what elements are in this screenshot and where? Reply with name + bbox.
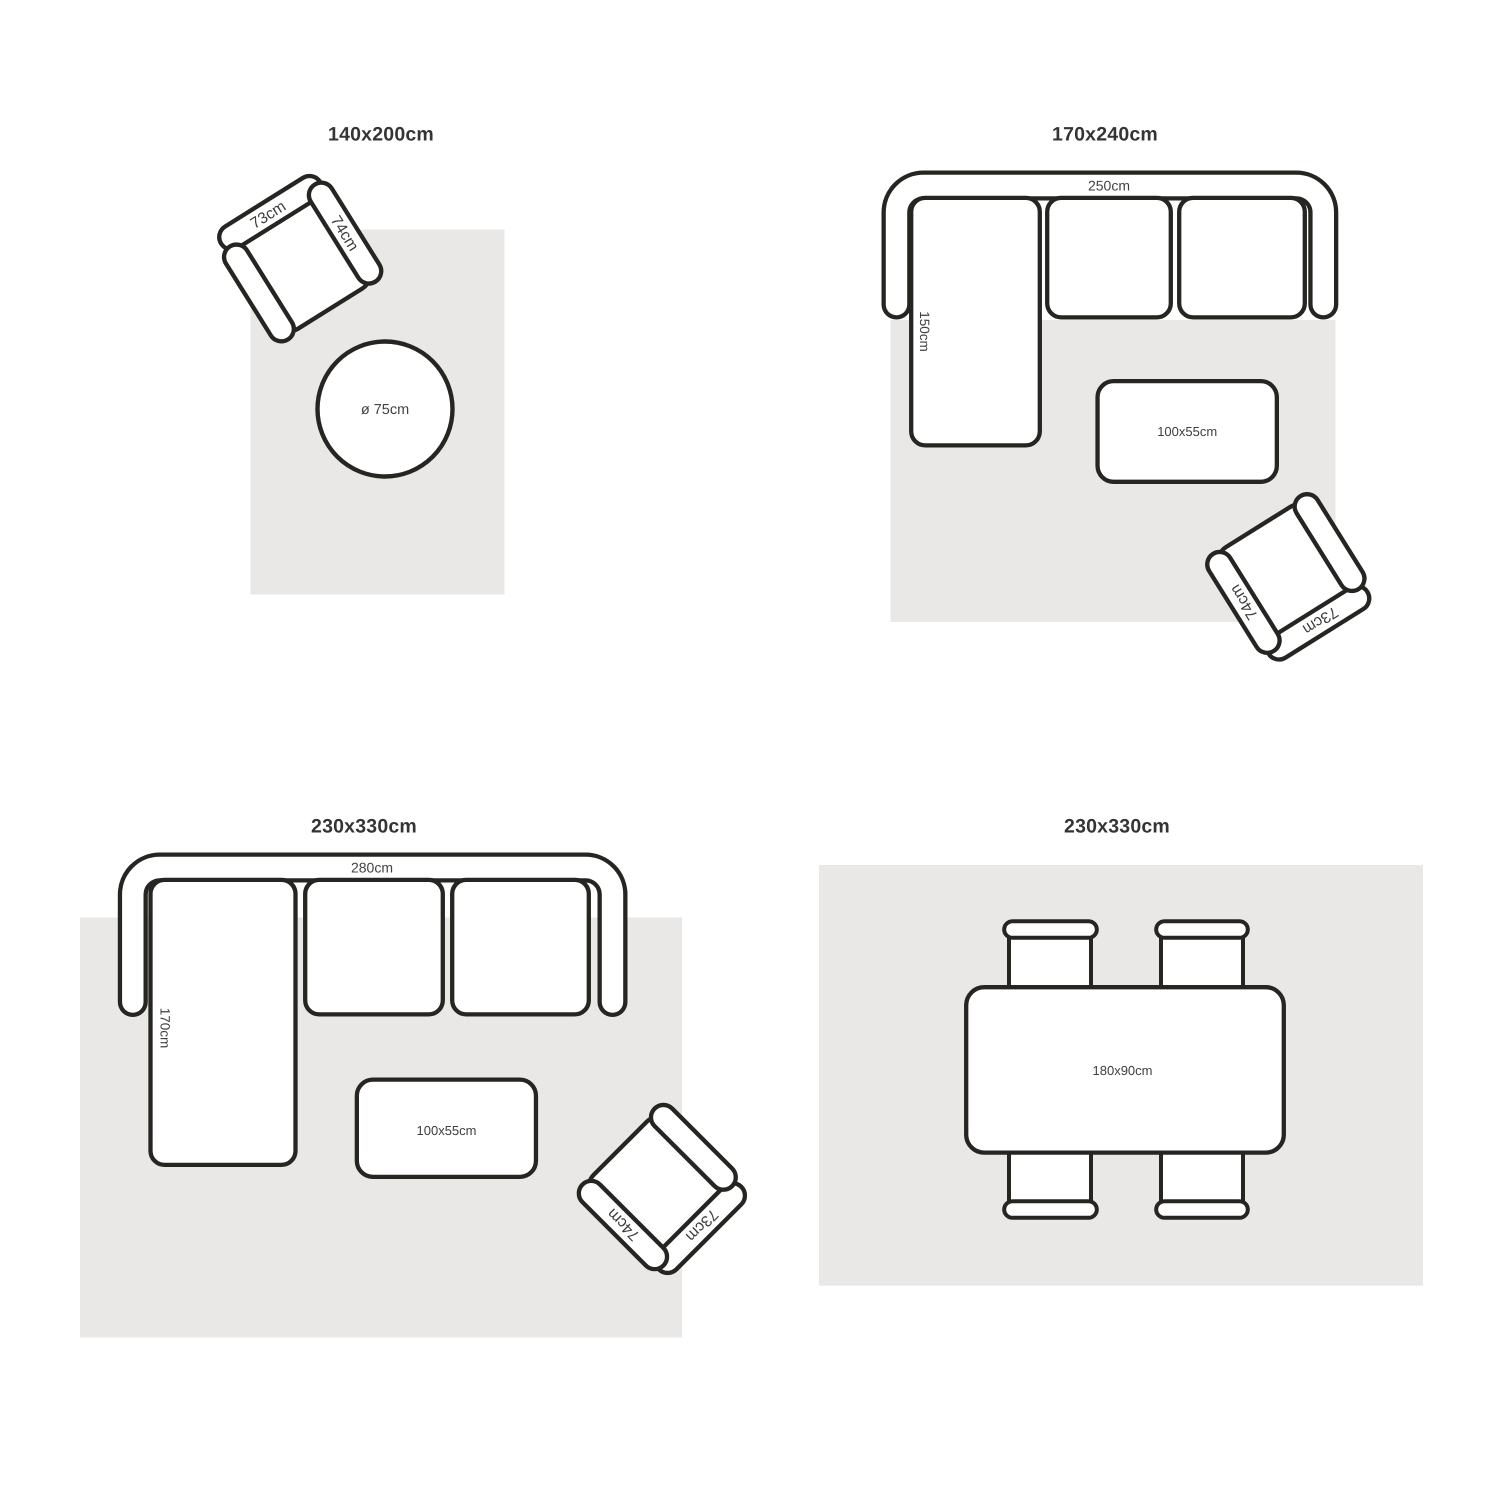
svg-text:100x55cm: 100x55cm: [417, 1123, 477, 1138]
svg-text:150cm: 150cm: [917, 311, 932, 352]
svg-text:ø 75cm: ø 75cm: [361, 402, 409, 418]
svg-text:250cm: 250cm: [1088, 177, 1130, 193]
svg-text:140x200cm: 140x200cm: [328, 124, 434, 146]
svg-text:280cm: 280cm: [351, 859, 393, 875]
svg-text:230x330cm: 230x330cm: [311, 816, 417, 838]
svg-text:100x55cm: 100x55cm: [1157, 424, 1217, 439]
svg-text:230x330cm: 230x330cm: [1064, 816, 1170, 838]
svg-text:170x240cm: 170x240cm: [1052, 124, 1158, 146]
svg-text:170cm: 170cm: [158, 1008, 173, 1049]
svg-text:180x90cm: 180x90cm: [1093, 1063, 1153, 1078]
